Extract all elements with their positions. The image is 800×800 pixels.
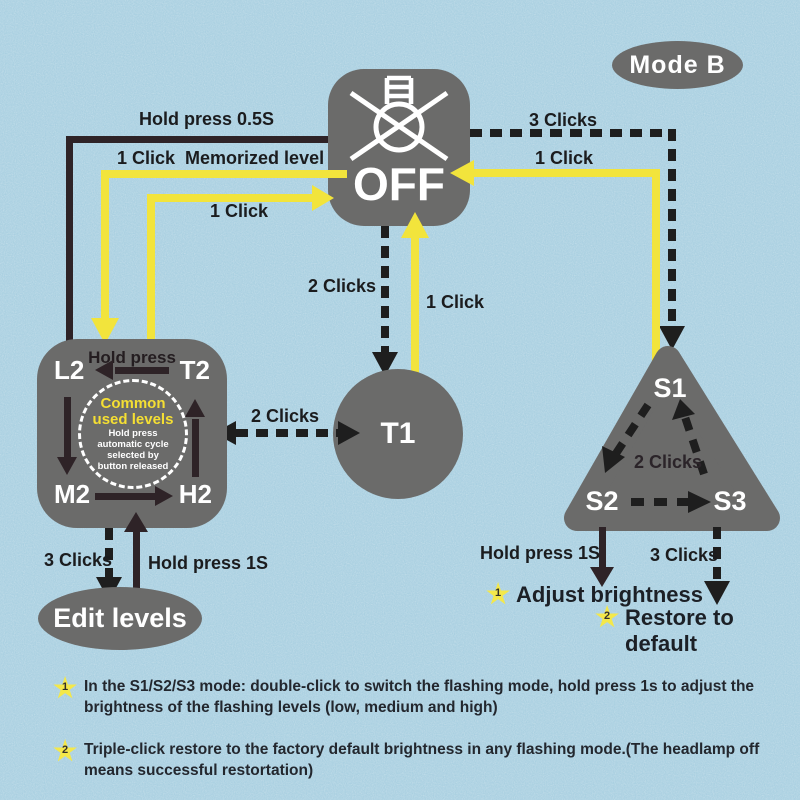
arrowhead-s1-off <box>450 160 474 186</box>
star-icon: ★ 1 <box>53 677 77 701</box>
common-levels-note-3: selected by <box>107 450 159 461</box>
common-levels-note-4: button released <box>98 461 169 472</box>
label-one-click-s1-off: 1 Click <box>535 148 593 169</box>
arrowhead-h2-t2 <box>185 399 205 417</box>
arrow-h2-t2 <box>192 419 199 477</box>
label-one-click-memorized: 1 Click Memorized level <box>117 148 324 169</box>
off-node: OFF <box>328 69 470 226</box>
star-icon: ★ 2 <box>53 740 77 764</box>
restore-badge: 2 <box>595 610 619 622</box>
common-levels-circle: Common used levels Hold press automatic … <box>78 379 188 489</box>
label-two-clicks-off-t1: 2 Clicks <box>308 276 376 297</box>
label-three-clicks-edit: 3 Clicks <box>44 550 112 571</box>
common-levels-note-2: automatic cycle <box>97 439 168 450</box>
label-three-clicks-s3: 3 Clicks <box>650 545 718 566</box>
note-2-line-2: means successful restortation) <box>84 760 759 781</box>
arrow-t1-off <box>411 236 419 384</box>
lamp-off-icon <box>341 71 457 163</box>
note-1-line-2: brightness of the flashing levels (low, … <box>84 697 754 718</box>
label-one-click-t1-off: 1 Click <box>426 292 484 313</box>
arrow-s2-adjust <box>599 527 606 569</box>
common-levels-title-2: used levels <box>93 412 174 428</box>
levels-box-node: Hold press L2 T2 M2 H2 Common used level… <box>37 339 227 528</box>
arrow-off-t1 <box>381 226 389 354</box>
level-h2: H2 <box>179 479 212 510</box>
note-1: In the S1/S2/S3 mode: double-click to sw… <box>84 676 754 718</box>
arrowhead-m2-h2 <box>155 486 173 506</box>
edit-levels-node: Edit levels <box>38 587 202 650</box>
level-l2: L2 <box>54 355 84 386</box>
off-node-label: OFF <box>328 157 470 211</box>
note1-badge: 1 <box>53 681 77 693</box>
level-t2: T2 <box>180 355 210 386</box>
mode-badge-label: Mode B <box>629 51 725 80</box>
star-icon: ★ 1 <box>486 583 510 607</box>
label-hold-press-1s-s2: Hold press 1S <box>480 543 600 564</box>
note-2: Triple-click restore to the factory defa… <box>84 739 759 781</box>
headlamp-mode-diagram: Mode B OFF Hold press 0.5S 1 Click Memor… <box>0 0 800 800</box>
arrow-s1-off-h <box>472 169 660 177</box>
adjust-badge: 1 <box>486 587 510 599</box>
label-hold-press-05s: Hold press 0.5S <box>139 109 274 130</box>
arrowhead-levels-t1-right <box>338 421 360 445</box>
t1-node-label: T1 <box>380 417 415 451</box>
arrow-memorized-h <box>101 170 347 178</box>
label-three-clicks-off-s1: 3 Clicks <box>529 110 597 131</box>
note-2-line-1: Triple-click restore to the factory defa… <box>84 739 759 760</box>
label-two-clicks-flash: 2 Clicks <box>626 452 710 473</box>
arrowhead-s3-restore <box>704 581 730 605</box>
arrow-m2-h2 <box>95 493 157 500</box>
label-one-click-left: 1 Click <box>210 201 268 222</box>
common-levels-title-1: Common <box>101 396 166 412</box>
arrowhead-l2-m2 <box>57 457 77 475</box>
flash-s3-label: S3 <box>700 486 760 517</box>
arrow-levels-t1 <box>236 429 338 437</box>
star-icon: ★ 2 <box>595 606 619 630</box>
arrowhead-levels-off <box>312 185 334 211</box>
mode-badge: Mode B <box>612 41 743 89</box>
arrow-memorized-v <box>101 170 109 320</box>
common-levels-note-1: Hold press <box>108 428 157 439</box>
arrowhead-edit-levels <box>124 512 148 532</box>
arrow-hold-press-05s-v <box>66 136 73 346</box>
flash-s2-label: S2 <box>572 486 632 517</box>
arrowhead-t1-off <box>401 212 429 238</box>
flash-s1-label: S1 <box>640 373 700 404</box>
arrow-l2-m2 <box>64 397 71 459</box>
note-1-line-1: In the S1/S2/S3 mode: double-click to sw… <box>84 676 754 697</box>
label-hold-press-1s-edit: Hold press 1S <box>148 553 268 574</box>
level-m2: M2 <box>54 479 90 510</box>
note2-badge: 2 <box>53 744 77 756</box>
restore-default-label: Restore to default <box>625 605 800 657</box>
arrow-hold-press-05s-h <box>66 136 328 143</box>
arrowhead-t2-l2 <box>95 360 113 380</box>
edit-levels-label: Edit levels <box>53 603 187 634</box>
label-two-clicks-levels-t1: 2 Clicks <box>251 406 319 427</box>
arrow-off-s1-v <box>668 129 676 328</box>
arrow-t2-l2 <box>115 367 169 374</box>
arrow-levels-off-v <box>147 194 155 340</box>
